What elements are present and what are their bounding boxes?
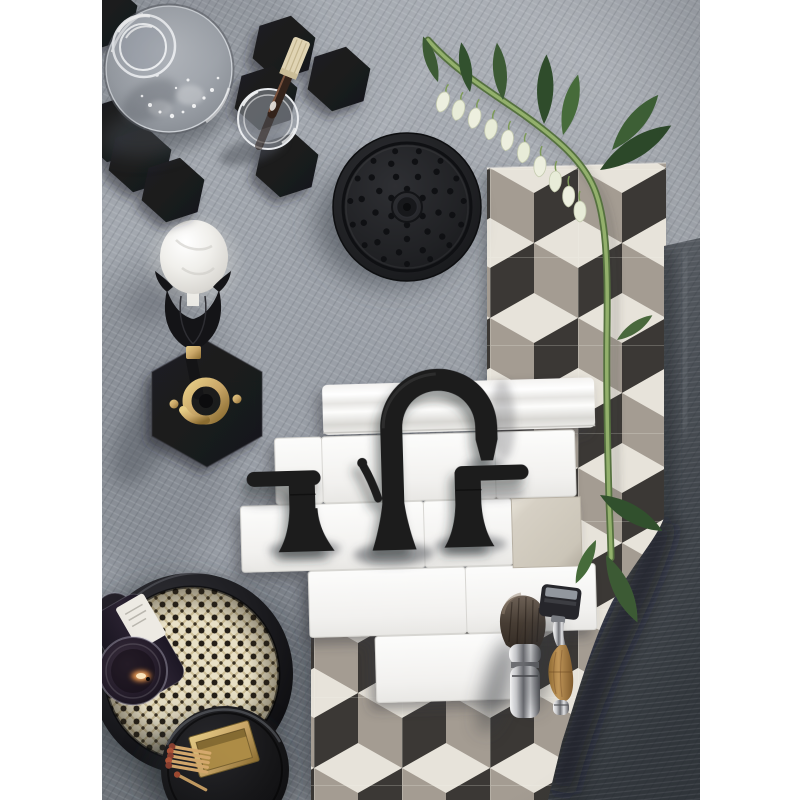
vignette	[102, 0, 700, 800]
flatlay-photo	[102, 0, 700, 800]
flatlay-illustration	[102, 0, 700, 800]
page: Flat-lay mood board photo: matte black w…	[0, 0, 800, 800]
